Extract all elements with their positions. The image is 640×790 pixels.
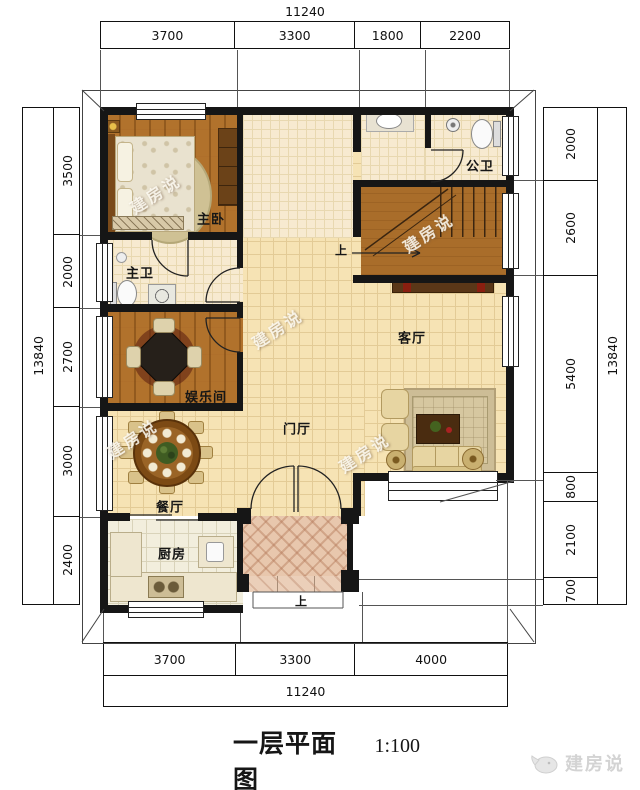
dim-top-seg-2: 3300 [235,22,356,48]
porch-up-label: 上 [295,593,307,610]
dim-strip-top: 11240 3700 3300 1800 2200 [100,4,510,49]
bay-window-living [388,471,498,501]
porch-steps [241,576,353,592]
room-label-living: 客厅 [398,328,426,347]
plan-scale: 1:100 [374,735,420,758]
dim-bottom-seg-1: 3700 [103,643,236,675]
wall-stairs-bottom [353,275,514,283]
bed-pillow [117,142,133,182]
dim-right-seg-4: 800 [563,475,578,499]
wall-central [237,107,243,240]
dining-centerpiece [156,442,178,464]
plan-title: 一层平面图 [233,724,360,790]
wall-porch-right [347,516,353,572]
room-label-kitchen: 厨房 [158,544,186,563]
brand-logo-text: 建房说 [565,750,625,776]
dresser [112,216,184,230]
window-bedroom [136,103,206,120]
title-block: 一层平面图 1:100 本层建筑面积: 134m² [233,724,420,790]
dim-left-seg-4: 3000 [60,445,75,477]
wall-stairs-top [353,180,514,187]
dim-bottom-seg-2: 3300 [236,643,355,675]
dim-left-seg-1: 3500 [60,155,75,187]
floor-porch [241,516,353,576]
wall-masterbath-bottom [100,304,243,312]
dim-top-seg-1: 3700 [100,22,235,48]
dim-strip-bottom: 3700 3300 4000 11240 [103,642,508,707]
dim-right-seg-2: 2600 [563,212,578,244]
coffee-table-plant [430,421,441,432]
dim-bottom-seg-3: 4000 [355,643,508,675]
bay-corner-block [496,473,514,483]
room-label-dining: 餐厅 [156,497,184,516]
floor-corridor [243,111,353,238]
side-table [462,448,484,470]
dim-right-seg-6: 700 [563,579,578,603]
wall-bedroom-bottom [100,232,152,240]
dim-strip-right: 2000 2600 5400 800 2100 700 13840 [543,107,627,605]
window-entertainment [96,316,113,398]
room-label-master-bedroom: 主卧 [197,209,225,228]
brand-logo: 建房说 [530,750,625,776]
chair [126,346,141,368]
chair [187,346,202,368]
toilet-bowl [471,119,493,149]
shower-drain [116,252,127,263]
window-kitchen [128,601,204,618]
room-label-entertainment: 娱乐间 [185,387,227,406]
chair [153,318,175,333]
shower-head [446,118,460,132]
dim-right-seg-5: 2100 [563,524,578,556]
dim-top-seg-4: 2200 [421,22,510,48]
wall-porch-left [237,516,243,578]
wall-bedroom-bottom [188,232,243,240]
dim-right-seg-1: 2000 [563,128,578,160]
armchair [381,389,409,419]
room-label-public-bath: 公卫 [466,156,494,175]
dim-left-total: 13840 [31,336,46,376]
stairs-up-label: 上 [335,242,347,259]
window-masterbath [96,243,113,302]
wall-central [237,302,243,318]
wall-dining-kitchen [198,513,243,521]
stove [148,576,184,598]
nightstand [106,120,120,133]
dim-left-seg-5: 2400 [60,544,75,576]
toilet-tank [493,121,501,147]
window-publicbath [502,116,519,176]
side-table [386,450,406,470]
dim-top-seg-3: 1800 [355,22,421,48]
wall-publicbath-west [425,107,431,148]
dim-bottom-total: 11240 [103,676,508,707]
dim-strip-left: 13840 3500 2000 2700 3000 2400 [22,107,80,605]
dim-right-seg-3: 5400 [563,358,578,390]
porch-block-br [341,570,359,592]
toilet-bowl [117,280,137,307]
porch-block-bl [237,574,249,592]
room-label-master-bath: 主卫 [126,263,154,282]
dim-right-total: 13840 [605,336,620,376]
wall-stairs-left [353,187,361,237]
window-dining [96,416,113,511]
kitchen-sink [206,542,224,562]
wall-dining-kitchen [100,513,130,521]
coffee-table-flower [446,427,452,433]
washbasin [376,113,402,129]
wall-washroom-west [353,107,361,152]
window-living [502,296,519,367]
dim-left-seg-2: 2000 [60,256,75,288]
room-label-foyer: 门厅 [283,419,311,438]
floor-plan-canvas: 11240 3700 3300 1800 2200 3700 3300 4000… [0,0,640,790]
kitchen-counter-west [110,532,142,577]
dim-left-seg-3: 2700 [60,341,75,373]
window-stairs [502,193,519,269]
wall-central [237,352,243,409]
dim-top-total: 11240 [100,4,510,21]
wall-central [237,240,243,268]
chair [153,381,175,396]
whale-icon [530,752,560,774]
